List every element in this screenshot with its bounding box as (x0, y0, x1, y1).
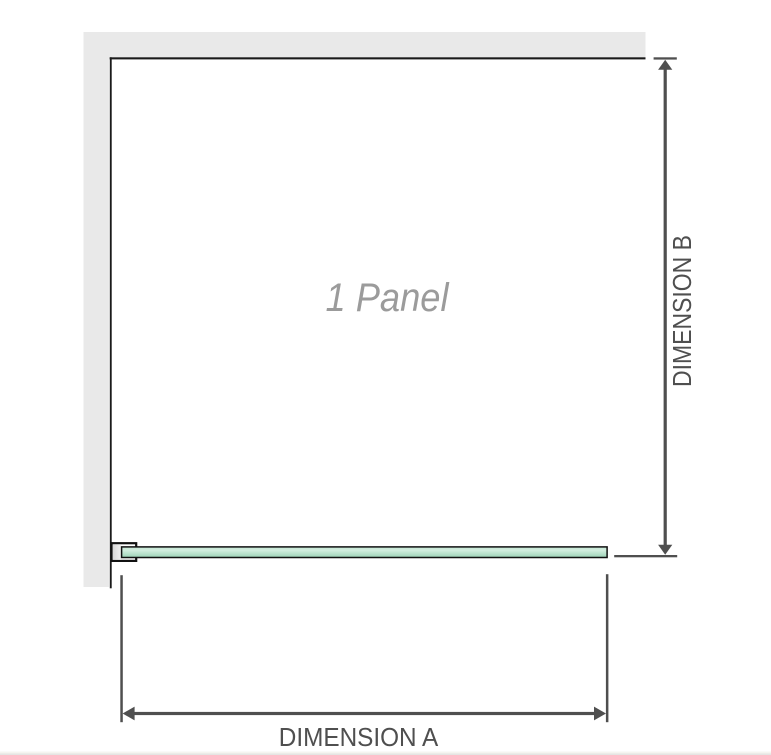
svg-text:1 Panel: 1 Panel (326, 276, 450, 320)
svg-text:DIMENSION A: DIMENSION A (279, 722, 439, 752)
svg-text:DIMENSION B: DIMENSION B (667, 235, 697, 387)
